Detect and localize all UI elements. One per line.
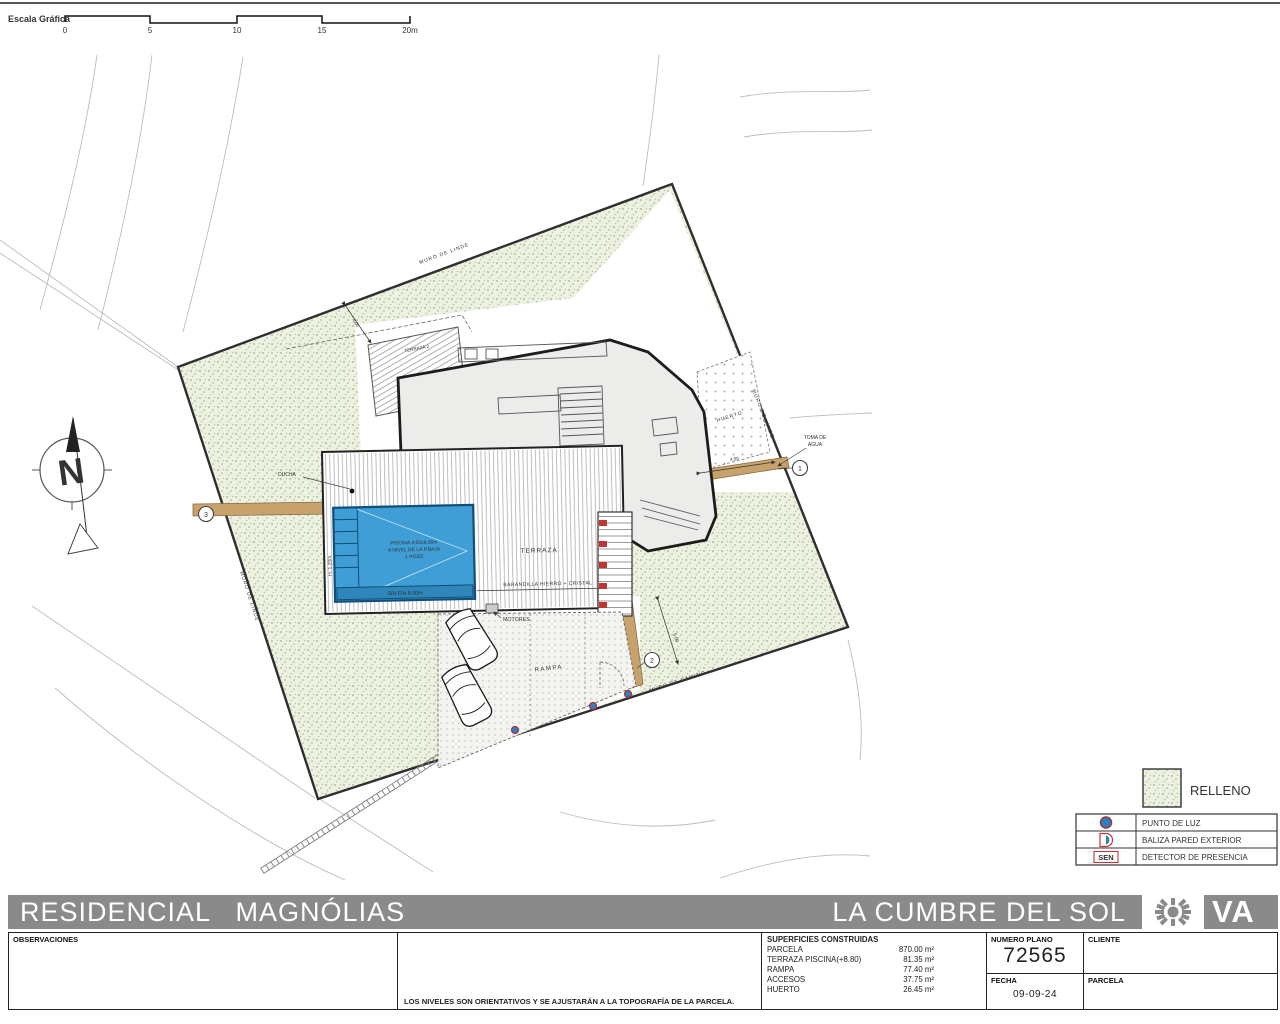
pool-label-1: PISCINA 4.00x8.00m xyxy=(390,540,437,547)
marker-1: 1 xyxy=(798,466,802,473)
superficie-label: TERRAZA PISCINA(+8.80) xyxy=(767,955,870,965)
superficies-header: SUPERFICIES CONSTRUIDAS xyxy=(767,935,986,945)
notes-cell: LOS NIVELES SON ORIENTATIVOS Y SE AJUSTA… xyxy=(398,933,762,1009)
superficie-value: 77.40 m² xyxy=(870,965,934,975)
exterior-stairs xyxy=(598,512,632,616)
relleno-swatch xyxy=(1143,769,1181,807)
north-letter: N xyxy=(55,449,86,493)
superficies-row: TERRAZA PISCINA(+8.80) 81.35 m² xyxy=(767,955,986,965)
superficies-row: PARCELA 870.00 m² xyxy=(767,945,986,955)
motores-label: MOTORES xyxy=(503,617,530,623)
site-plan-canvas: PISCINA 4.00x8.00m A NIVEL DE LA P.BAJA … xyxy=(0,0,1280,890)
relleno-label: RELLENO xyxy=(1190,783,1251,798)
numero-plano-value: 72565 xyxy=(987,944,1083,967)
terraza-label: TERRAZA xyxy=(520,547,557,555)
pool-depth-label: H: 1.20m xyxy=(327,555,333,575)
scale-tick-20: 20m xyxy=(402,26,418,35)
parcela-label: PARCELA xyxy=(1084,974,1277,985)
superficie-label: HUERTO xyxy=(767,985,870,995)
observaciones-label: OBSERVACIONES xyxy=(9,933,397,944)
marker-2: 2 xyxy=(650,658,654,665)
superficies-row: RAMPA 77.40 m² xyxy=(767,965,986,975)
ramp: RAMPA xyxy=(438,604,636,768)
info-table: OBSERVACIONES LOS NIVELES SON ORIENTATIV… xyxy=(8,932,1278,1010)
light-point-icon xyxy=(1101,817,1112,828)
pool-label-3: 1 POZO xyxy=(405,554,424,560)
superficie-label: PARCELA xyxy=(767,945,870,955)
pool-label-2: A NIVEL DE LA P.BAJA xyxy=(388,547,441,554)
superficie-value: 26.45 m² xyxy=(870,985,934,995)
location-title: LA CUMBRE DEL SOL xyxy=(832,897,1126,928)
legend: RELLENO SEN PUNTO DE LUZ BALIZA PARED EX… xyxy=(1076,769,1277,865)
marker-3: 3 xyxy=(204,512,208,519)
legend-row-label: BALIZA PARED EXTERIOR xyxy=(1142,836,1242,845)
superficie-label: ACCESOS xyxy=(767,975,870,985)
toma-de-agua-label-1: TOMA DE xyxy=(804,435,827,441)
title-banner: RESIDENCIAL MAGNÓLIAS LA CUMBRE DEL SOL … xyxy=(8,895,1278,929)
superficies-row: ACCESOS 37.75 m² xyxy=(767,975,986,985)
ducha-label: DUCHA xyxy=(278,472,296,478)
scale-bar: Escala Gráfica 0 5 10 15 20m xyxy=(8,14,418,35)
title-block: RESIDENCIAL MAGNÓLIAS LA CUMBRE DEL SOL … xyxy=(8,895,1278,1010)
logo-text: VA xyxy=(1204,895,1278,929)
banner-main: RESIDENCIAL MAGNÓLIAS LA CUMBRE DEL SOL xyxy=(8,895,1142,929)
pool: PISCINA 4.00x8.00m A NIVEL DE LA P.BAJA … xyxy=(326,505,475,602)
pool-motors-box xyxy=(486,604,498,613)
logo-box xyxy=(1145,895,1201,929)
fecha-label: FECHA xyxy=(987,974,1083,985)
scale-bar-label: Escala Gráfica xyxy=(8,14,71,24)
levels-note: LOS NIVELES SON ORIENTATIVOS Y SE AJUSTA… xyxy=(404,997,734,1006)
north-needle xyxy=(66,416,80,452)
fecha-value: 09-09-24 xyxy=(987,989,1083,1000)
numero-plano-label: NUMERO PLANO xyxy=(987,933,1083,944)
toma-de-agua-label-2: AGUA xyxy=(808,442,823,448)
superficie-value: 37.75 m² xyxy=(870,975,934,985)
shower-point xyxy=(350,489,355,494)
cliente-parcela-cell: CLIENTE PARCELA xyxy=(1084,933,1277,1009)
legend-row-label: DETECTOR DE PRESENCIA xyxy=(1142,853,1248,862)
observaciones-cell: OBSERVACIONES xyxy=(9,933,398,1009)
superficies-cell: SUPERFICIES CONSTRUIDAS PARCELA 870.00 m… xyxy=(762,933,987,1009)
plan-number-cell: NUMERO PLANO 72565 FECHA 09-09-24 xyxy=(987,933,1084,1009)
scale-tick-0: 0 xyxy=(63,26,68,35)
project-title: RESIDENCIAL MAGNÓLIAS xyxy=(20,897,405,928)
superficies-row: HUERTO 26.45 m² xyxy=(767,985,986,995)
pool-platform: PISCINA 4.00x8.00m A NIVEL DE LA P.BAJA … xyxy=(322,446,625,614)
north-compass: N xyxy=(32,416,112,554)
cliente-label: CLIENTE xyxy=(1084,933,1277,944)
presence-detector-icon-text: SEN xyxy=(1098,853,1113,862)
scale-tick-15: 15 xyxy=(318,26,327,35)
legend-row-label: PUNTO DE LUZ xyxy=(1142,819,1201,828)
scale-tick-5: 5 xyxy=(148,26,153,35)
superficie-label: RAMPA xyxy=(767,965,870,975)
superficie-value: 81.35 m² xyxy=(870,955,934,965)
pool-sinfin-label: SIN FIN 8.00m xyxy=(387,590,423,597)
scale-tick-10: 10 xyxy=(233,26,242,35)
sun-logo-icon xyxy=(1151,897,1195,927)
superficie-value: 870.00 m² xyxy=(870,945,934,955)
